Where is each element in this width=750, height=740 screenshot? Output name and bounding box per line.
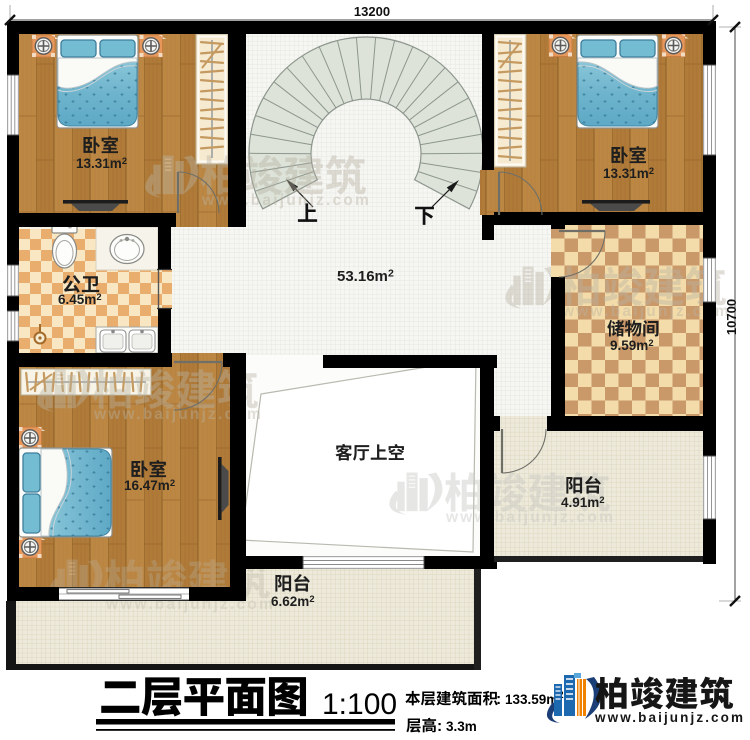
svg-text:53.16m: 53.16m	[337, 268, 388, 285]
svg-text:9.59m: 9.59m	[610, 338, 648, 353]
svg-text:2: 2	[170, 477, 175, 488]
svg-text:www.baijunjz.com: www.baijunjz.com	[445, 509, 615, 526]
svg-text:2: 2	[599, 494, 604, 505]
svg-text:13.31m: 13.31m	[603, 166, 649, 181]
svg-text:13.31m: 13.31m	[76, 156, 122, 171]
svg-text:2: 2	[648, 337, 653, 348]
svg-text:6.62m: 6.62m	[271, 594, 309, 609]
svg-text:133.59m: 133.59m	[505, 692, 558, 707]
svg-text::: :	[496, 691, 501, 708]
svg-text:www.baijunjz.com: www.baijunjz.com	[594, 710, 745, 725]
svg-text:6.45m: 6.45m	[58, 292, 96, 307]
svg-text:13200: 13200	[354, 4, 390, 19]
svg-text:2: 2	[649, 165, 654, 176]
svg-text:2: 2	[388, 268, 394, 280]
svg-text:2: 2	[96, 291, 101, 302]
svg-text:1:100: 1:100	[322, 688, 397, 721]
svg-text:10700: 10700	[724, 299, 739, 335]
svg-text:16.47m: 16.47m	[124, 478, 170, 493]
svg-text:3.3m: 3.3m	[446, 719, 477, 734]
svg-text:2: 2	[309, 593, 314, 604]
svg-text:4.91m: 4.91m	[561, 495, 599, 510]
svg-text:www.baijunjz.com: www.baijunjz.com	[201, 192, 371, 209]
svg-text::: :	[437, 718, 442, 735]
svg-text:2: 2	[122, 155, 127, 166]
